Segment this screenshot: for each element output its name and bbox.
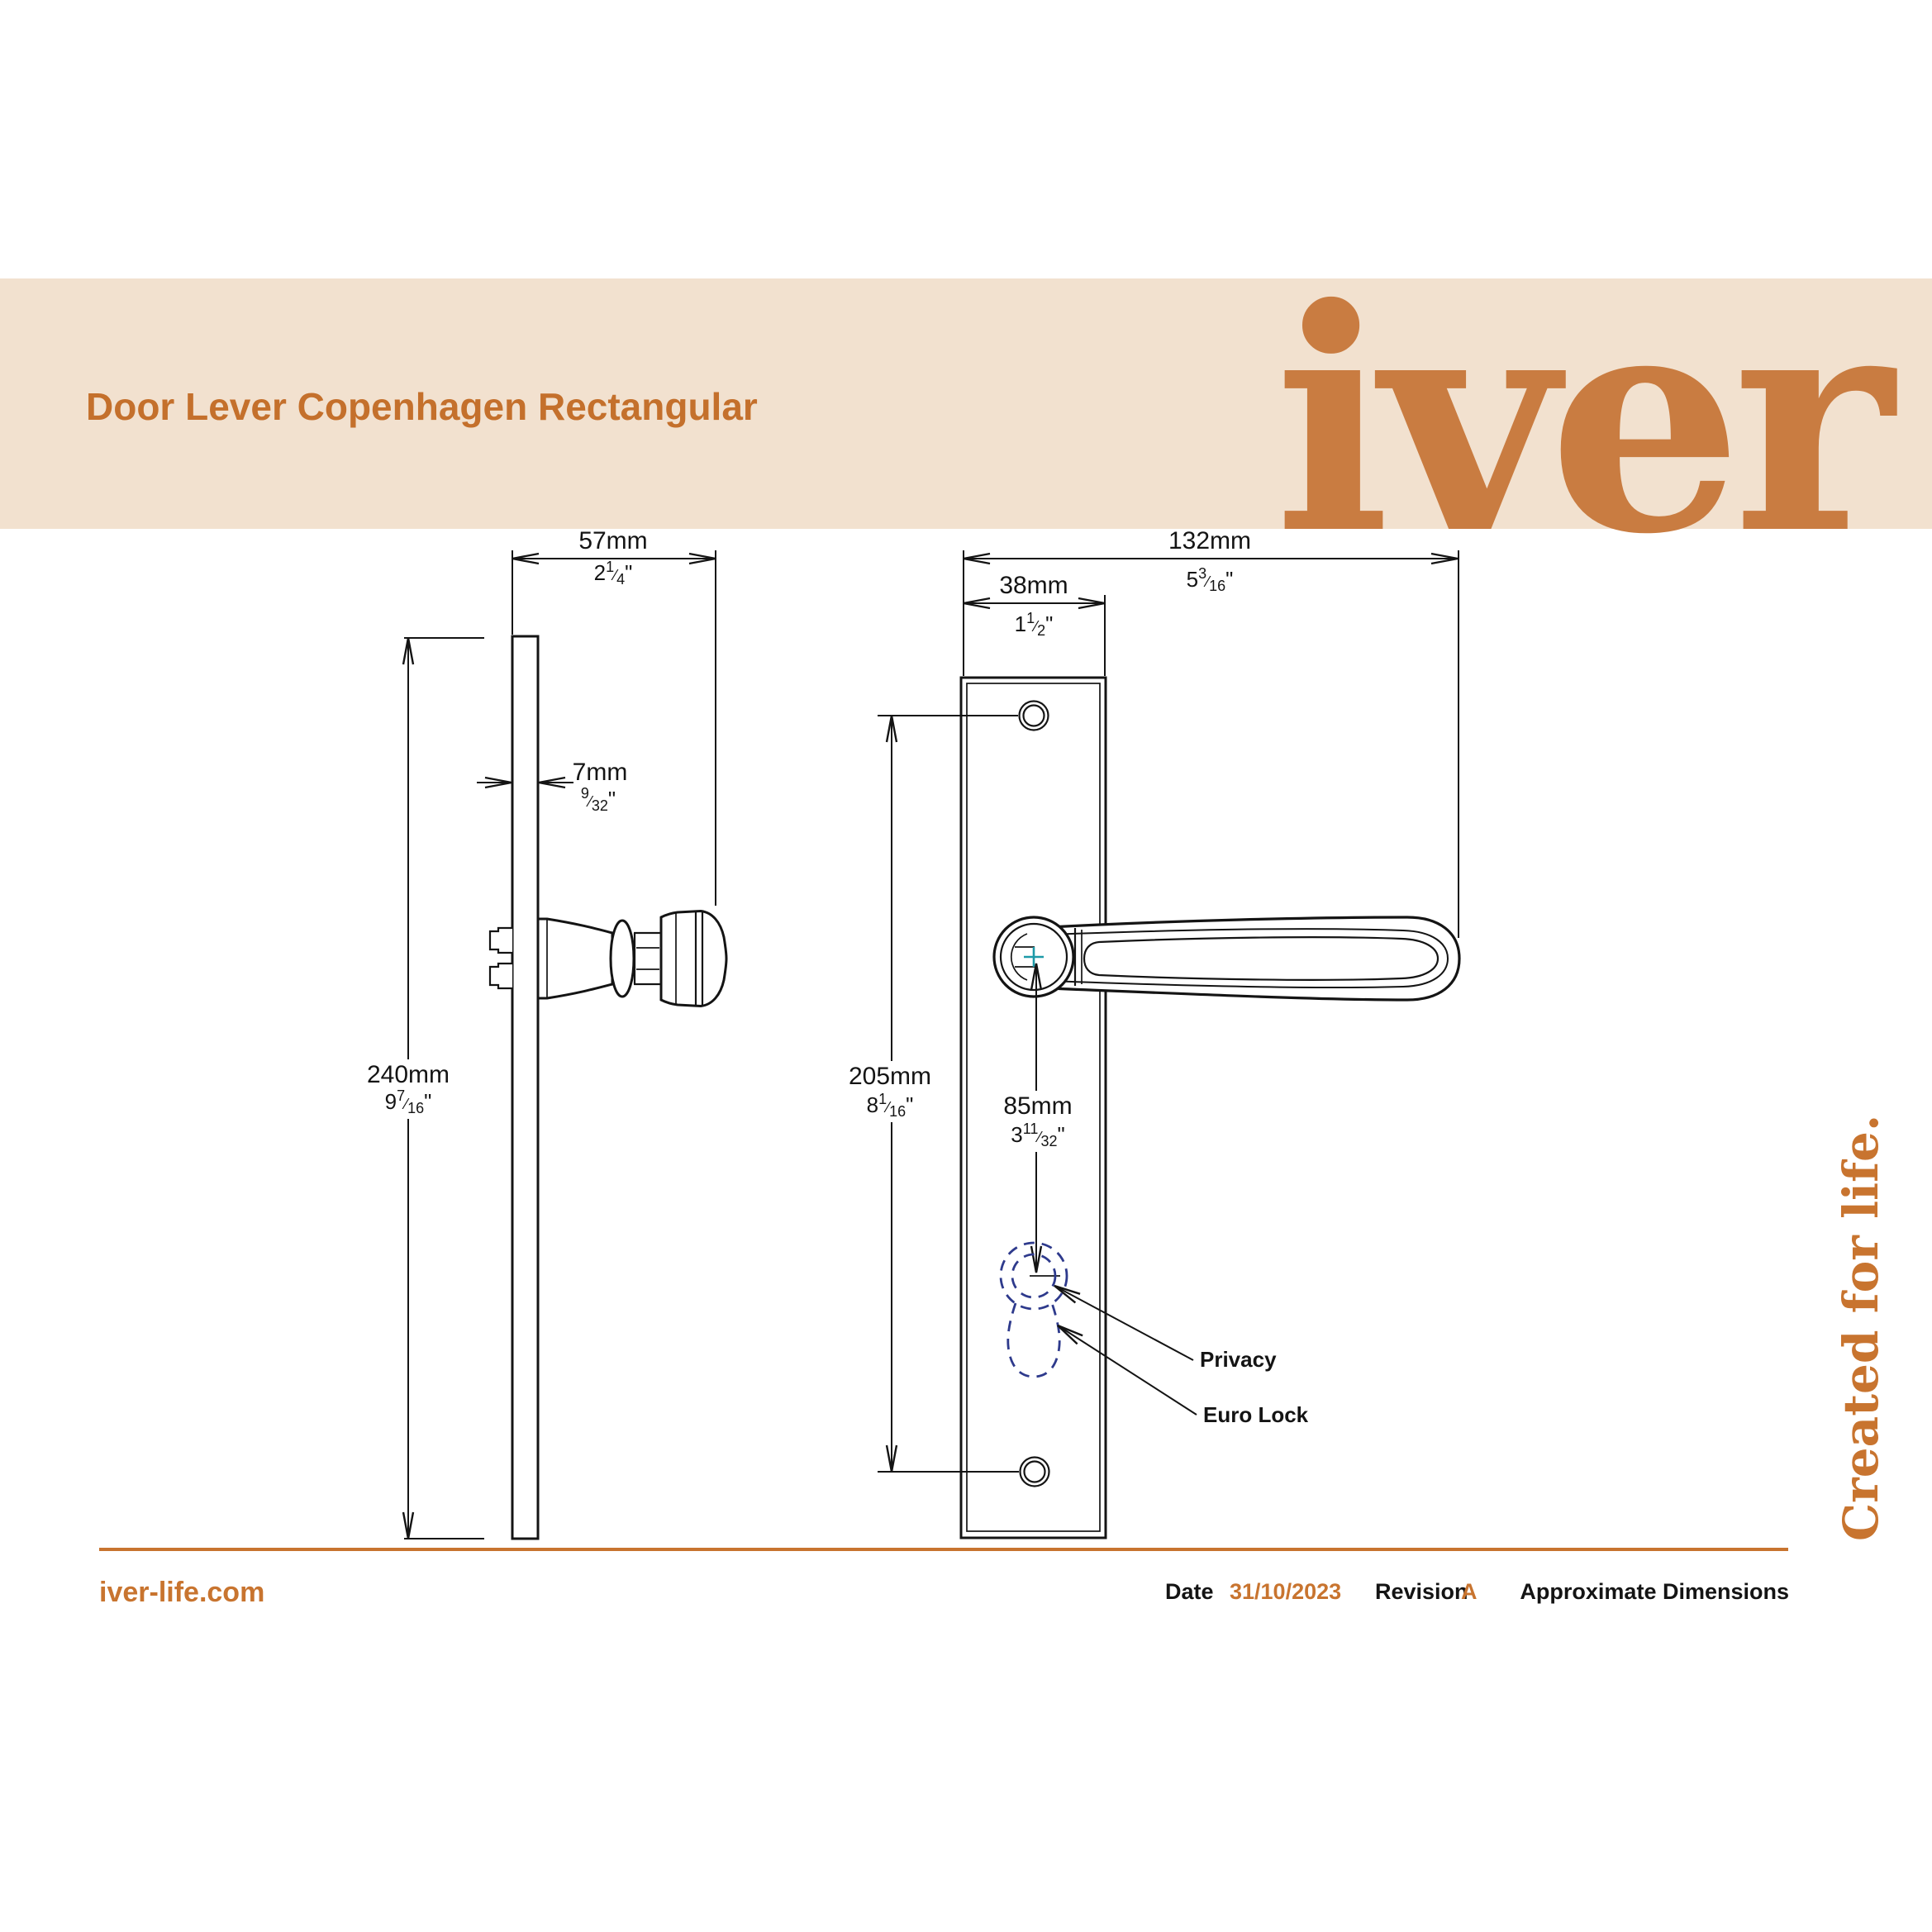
- dim-label: 38mm: [999, 572, 1068, 599]
- revision-value: A: [1461, 1579, 1478, 1604]
- dim-label: 85mm: [1003, 1092, 1072, 1120]
- dim-label-inch: 81⁄16": [867, 1091, 914, 1120]
- dim-side-thickness: 7mm 9⁄32": [477, 759, 627, 814]
- website-link[interactable]: iver-life.com: [99, 1577, 264, 1608]
- dim-label-inch: 9⁄32": [581, 785, 616, 814]
- spec-sheet: Door Lever Copenhagen Rectangular iver 5…: [0, 0, 1932, 1932]
- euro-lock-label: Euro Lock: [1203, 1402, 1309, 1427]
- dim-label-inch: 11⁄2": [1015, 610, 1054, 639]
- screw-hole-bottom: [1021, 1458, 1049, 1487]
- dim-label-inch: 21⁄4": [594, 559, 633, 588]
- dim-label-inch: 97⁄16": [385, 1087, 432, 1116]
- dim-plate-width: 38mm 11⁄2": [964, 572, 1105, 676]
- screw-hole-top: [1020, 702, 1049, 730]
- dim-side-width: 57mm 21⁄4": [512, 527, 716, 906]
- dim-label-inch: 53⁄16": [1187, 565, 1234, 594]
- page-title: Door Lever Copenhagen Rectangular: [86, 385, 758, 428]
- dim-label: 57mm: [578, 527, 647, 554]
- lever-collar-side: [611, 921, 634, 997]
- privacy-label: Privacy: [1200, 1347, 1277, 1372]
- lever-grip-side: [661, 911, 726, 1006]
- dim-label: 7mm: [573, 759, 628, 786]
- dim-label: 240mm: [367, 1061, 450, 1088]
- tagline-vertical: Created for life.: [1833, 1115, 1889, 1541]
- fixing-lug: [490, 928, 512, 953]
- dim-label: 132mm: [1168, 527, 1251, 554]
- dim-label: 205mm: [849, 1063, 931, 1090]
- date-label: Date: [1165, 1579, 1214, 1604]
- dim-label-inch: 311⁄32": [1011, 1121, 1064, 1149]
- front-view: 132mm 53⁄16" 38mm 11⁄2" 205mm: [849, 527, 1459, 1538]
- fixing-lug: [490, 964, 512, 988]
- lever-neck-side: [538, 919, 612, 998]
- dim-side-height: 240mm 97⁄16": [367, 638, 484, 1539]
- brand-logo: iver: [1274, 243, 1900, 602]
- side-view: 57mm 21⁄4" 240mm 97⁄16" 7mm 9⁄32": [367, 527, 726, 1539]
- revision-label: Revision: [1375, 1579, 1468, 1604]
- backplate-side: [512, 636, 538, 1539]
- drawing-canvas: Door Lever Copenhagen Rectangular iver 5…: [0, 0, 1932, 1932]
- lever-spindle-side: [634, 933, 662, 984]
- footer: iver-life.com Date 31/10/2023 Revision A…: [99, 1549, 1789, 1608]
- lever-front: [994, 917, 1459, 1000]
- dimensions-note: Approximate Dimensions: [1520, 1579, 1789, 1604]
- date-value: 31/10/2023: [1230, 1579, 1341, 1604]
